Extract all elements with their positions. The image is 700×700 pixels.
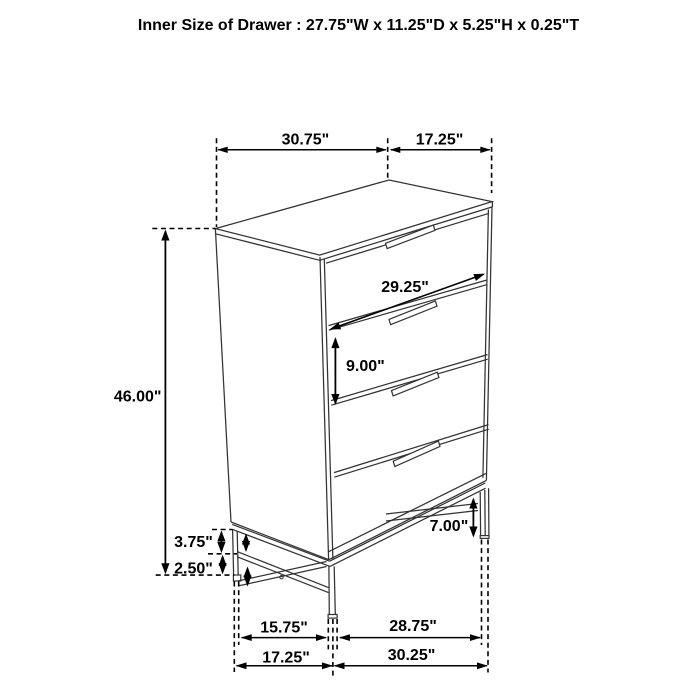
svg-text:30.25": 30.25" [388,647,436,664]
svg-text:46.00": 46.00" [114,389,162,406]
svg-text:15.75": 15.75" [260,620,308,637]
svg-text:9.00": 9.00" [346,358,385,375]
svg-text:3.75": 3.75" [174,534,213,551]
svg-text:17.25": 17.25" [262,649,310,666]
svg-text:17.25": 17.25" [416,132,464,149]
svg-text:7.00": 7.00" [430,518,469,535]
svg-text:Inner Size of Drawer : 27.75"W: Inner Size of Drawer : 27.75"W x 11.25"D… [138,17,579,34]
svg-text:29.25": 29.25" [381,279,429,296]
svg-text:2.50": 2.50" [174,561,213,578]
svg-text:28.75": 28.75" [389,618,437,635]
svg-text:30.75": 30.75" [282,132,330,149]
